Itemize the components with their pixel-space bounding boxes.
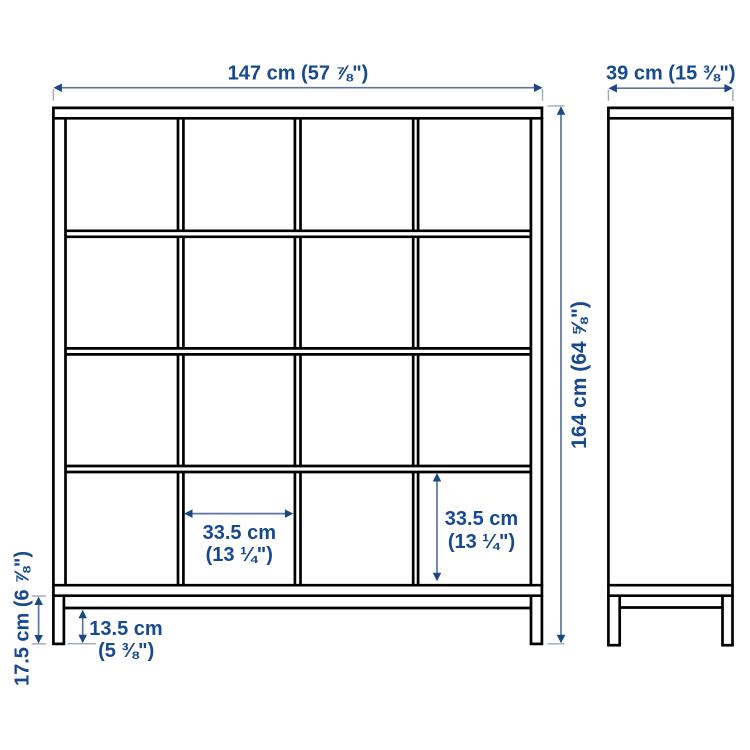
svg-text:147 cm (57 ⅞"): 147 cm (57 ⅞") xyxy=(228,62,369,84)
svg-text:164 cm (64 ⅝"): 164 cm (64 ⅝") xyxy=(568,301,591,449)
svg-text:(13 ¼"): (13 ¼") xyxy=(206,544,273,566)
svg-text:39 cm (15 ⅜"): 39 cm (15 ⅜") xyxy=(606,62,736,84)
svg-text:33.5 cm: 33.5 cm xyxy=(445,508,518,530)
svg-text:(13 ¼"): (13 ¼") xyxy=(448,531,515,553)
svg-text:17.5 cm (6 ⅞"): 17.5 cm (6 ⅞") xyxy=(12,551,34,686)
svg-text:(5 ⅜"): (5 ⅜") xyxy=(98,640,154,662)
svg-text:13.5 cm: 13.5 cm xyxy=(89,618,162,640)
svg-text:33.5 cm: 33.5 cm xyxy=(203,522,276,544)
